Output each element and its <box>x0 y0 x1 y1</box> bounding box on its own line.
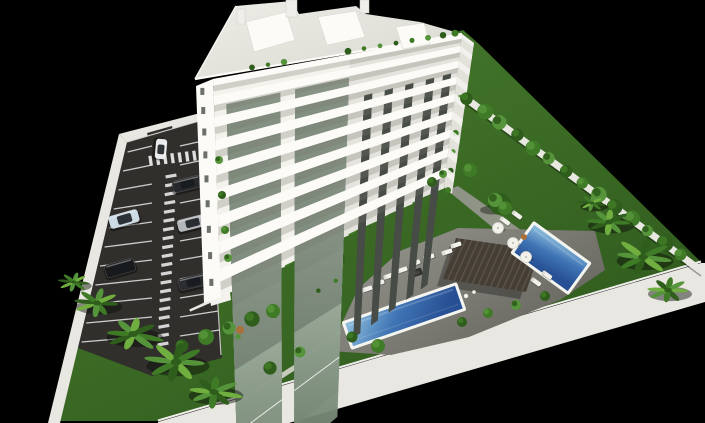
shrub <box>199 330 208 339</box>
shrub <box>464 164 472 172</box>
roof-terrace-plant <box>425 35 431 41</box>
balcony-plant <box>316 288 321 293</box>
shrub <box>216 157 220 161</box>
shrub <box>489 194 497 202</box>
balcony-plant <box>334 279 338 283</box>
shrub <box>499 202 507 210</box>
deck-table <box>464 294 468 298</box>
shrub <box>295 347 301 353</box>
shrub <box>484 309 490 315</box>
west-wall-window <box>209 279 213 286</box>
shrub <box>267 305 275 313</box>
side-balcony-plant <box>445 187 451 193</box>
roof-chimney <box>286 0 297 17</box>
shrub <box>543 153 550 160</box>
balcony-plant <box>235 334 240 339</box>
shrub <box>222 227 226 231</box>
flowering-shrub <box>236 326 244 334</box>
west-wall-window <box>206 200 210 207</box>
shrub <box>493 116 501 124</box>
shrub <box>643 226 649 232</box>
west-wall-window <box>200 88 204 95</box>
roof-terrace-plant <box>394 41 399 46</box>
roof-terrace-plant <box>409 38 414 43</box>
west-wall-window <box>204 175 208 182</box>
roof-terrace-plant <box>281 59 287 65</box>
shrub <box>219 192 223 196</box>
shrub <box>246 313 254 321</box>
shrub <box>461 93 468 100</box>
west-wall-window <box>203 151 207 158</box>
shrub <box>478 105 487 114</box>
shrub <box>561 166 568 173</box>
roof-terrace-plant <box>362 46 367 51</box>
roof-terrace-plant <box>378 43 383 48</box>
shrub <box>541 292 547 298</box>
roof-chimney <box>237 9 245 24</box>
west-wall-window <box>202 128 206 135</box>
parasol <box>508 238 519 249</box>
render-canvas: Aerial 3D rendering of a residential com… <box>0 0 705 423</box>
parasol <box>521 252 532 263</box>
west-wall-window <box>208 252 212 259</box>
roof-chimney <box>360 0 369 13</box>
deck-chair <box>472 290 476 294</box>
shrub <box>428 178 434 184</box>
shrub <box>512 129 519 136</box>
shrub <box>225 255 229 259</box>
van-white <box>152 137 167 161</box>
shrub <box>372 340 380 348</box>
shrub <box>347 332 353 338</box>
shrub <box>264 362 271 369</box>
shrub <box>512 301 518 307</box>
west-wall-window <box>207 226 211 233</box>
roof-terrace-plant <box>345 48 352 55</box>
shrub <box>440 171 444 175</box>
roof-terrace-plant <box>249 64 255 70</box>
scene-svg <box>0 0 705 423</box>
shrub <box>608 200 617 209</box>
shrub <box>527 142 535 150</box>
roof-terrace-plant <box>266 63 270 67</box>
shrub <box>577 178 583 184</box>
shrub <box>223 322 230 329</box>
parasol <box>493 223 504 234</box>
roof-terrace-plant <box>440 32 446 38</box>
shrub <box>675 249 682 256</box>
shrub <box>658 236 667 245</box>
shrub <box>458 318 464 324</box>
car-glass <box>157 144 165 154</box>
roof-terrace-plant <box>452 30 459 37</box>
west-wall-window <box>201 107 205 114</box>
flowering-shrub <box>521 234 527 240</box>
shrub <box>625 212 634 221</box>
